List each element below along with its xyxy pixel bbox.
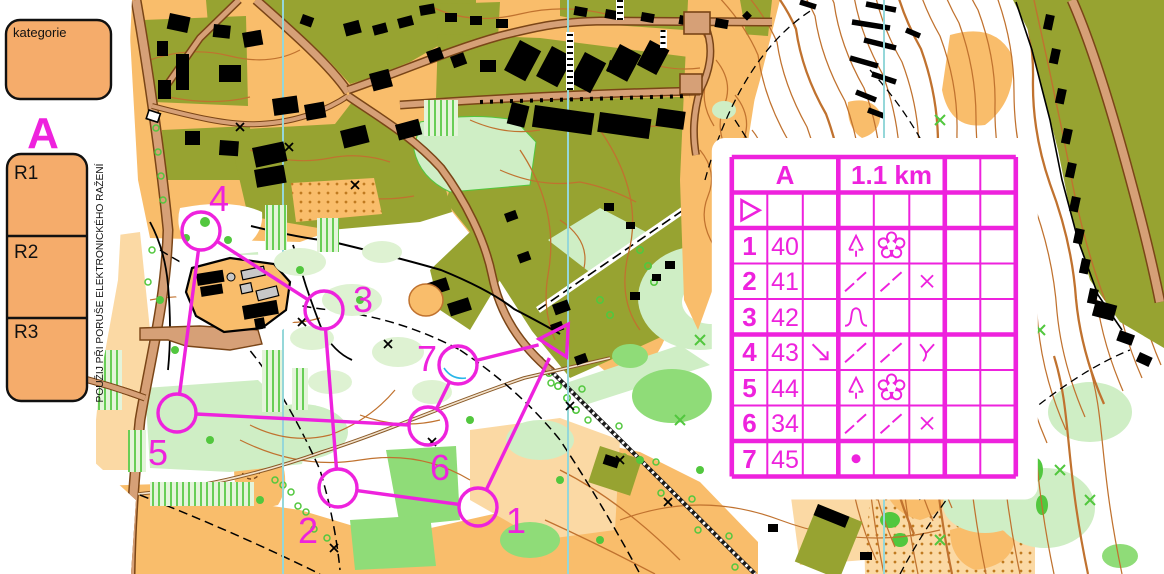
svg-text:7: 7: [742, 444, 756, 474]
svg-text:A: A: [27, 109, 59, 158]
svg-text:R2: R2: [14, 242, 38, 263]
svg-text:44: 44: [771, 375, 799, 403]
svg-text:kategorie: kategorie: [13, 25, 66, 40]
svg-text:1: 1: [742, 231, 756, 261]
svg-text:40: 40: [771, 233, 799, 261]
svg-text:6: 6: [742, 408, 756, 438]
svg-text:R3: R3: [14, 322, 38, 343]
svg-text:2: 2: [298, 510, 318, 551]
svg-text:5: 5: [148, 432, 168, 473]
svg-text:A: A: [776, 160, 795, 190]
svg-text:3: 3: [742, 302, 756, 332]
svg-text:45: 45: [771, 446, 799, 474]
svg-text:42: 42: [771, 304, 799, 332]
svg-text:4: 4: [742, 337, 757, 367]
svg-text:1: 1: [506, 500, 526, 541]
svg-text:34: 34: [771, 410, 799, 438]
svg-text:5: 5: [742, 373, 756, 403]
svg-text:3: 3: [353, 279, 373, 320]
svg-text:R1: R1: [14, 163, 38, 184]
svg-text:43: 43: [771, 339, 799, 367]
svg-text:41: 41: [771, 268, 799, 296]
svg-text:1.1 km: 1.1 km: [851, 160, 932, 190]
svg-text:7: 7: [417, 338, 437, 379]
svg-text:6: 6: [430, 447, 450, 488]
svg-text:4: 4: [209, 178, 229, 219]
svg-text:2: 2: [742, 266, 756, 296]
svg-text:POUŽIJ PŘI PORUŠE ELEKTRONICKÉ: POUŽIJ PŘI PORUŠE ELEKTRONICKÉHO RAŽENÍ: [93, 163, 106, 402]
